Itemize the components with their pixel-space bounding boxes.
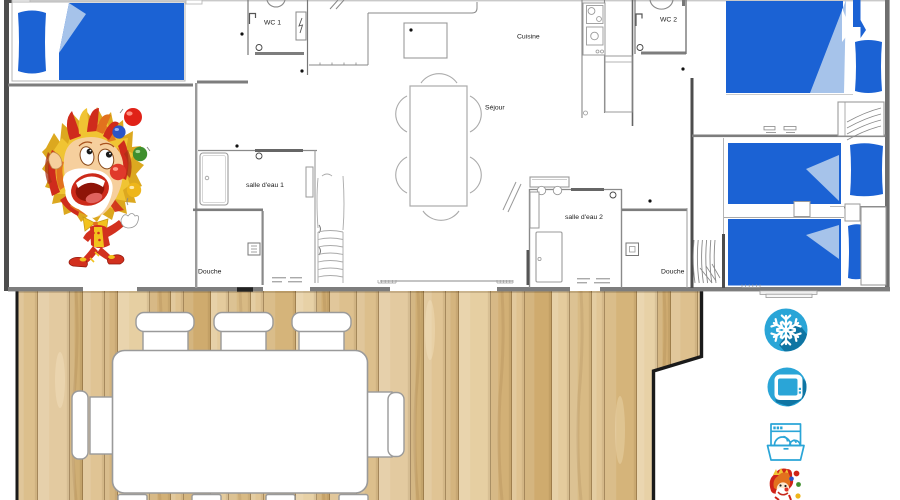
svg-text:salle d'eau 1: salle d'eau 1 — [246, 182, 284, 189]
svg-text:salle d'eau 2: salle d'eau 2 — [565, 214, 603, 221]
svg-text:Douche: Douche — [198, 269, 222, 276]
svg-text:WC 1: WC 1 — [264, 20, 281, 27]
svg-text:WC 2: WC 2 — [660, 17, 677, 24]
svg-text:Cuisine: Cuisine — [517, 34, 540, 41]
svg-text:Séjour: Séjour — [485, 105, 505, 112]
svg-text:Douche: Douche — [661, 269, 685, 276]
